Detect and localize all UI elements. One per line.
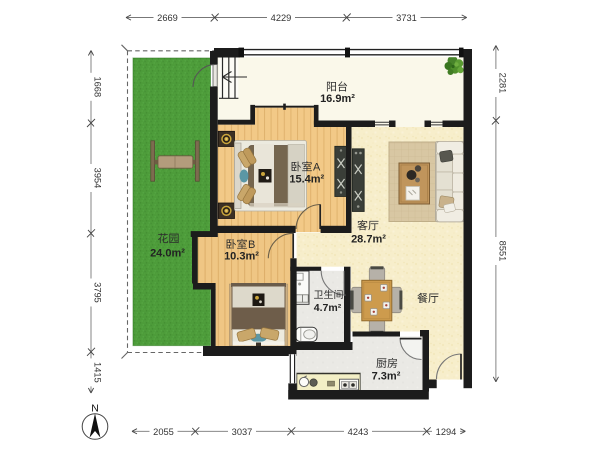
svg-text:8551: 8551: [497, 241, 507, 262]
svg-text:2055: 2055: [153, 427, 174, 437]
svg-text:1294: 1294: [436, 427, 457, 437]
svg-text:3037: 3037: [232, 427, 253, 437]
svg-text:1668: 1668: [93, 76, 103, 97]
svg-text:7.3m²: 7.3m²: [372, 370, 401, 382]
svg-text:28.7m²: 28.7m²: [351, 233, 386, 245]
svg-text:3731: 3731: [396, 13, 417, 23]
svg-text:15.4m²: 15.4m²: [289, 173, 324, 185]
svg-text:4.7m²: 4.7m²: [314, 302, 342, 314]
svg-text:3954: 3954: [93, 168, 103, 189]
svg-text:24.0m²: 24.0m²: [150, 247, 185, 259]
svg-text:B: B: [248, 239, 255, 251]
svg-text:2669: 2669: [157, 13, 178, 23]
svg-text:2281: 2281: [497, 73, 507, 94]
svg-text:1415: 1415: [93, 362, 103, 383]
svg-text:4243: 4243: [348, 427, 369, 437]
svg-text:N: N: [91, 403, 99, 415]
svg-text:A: A: [313, 162, 321, 174]
svg-text:10.3m²: 10.3m²: [224, 250, 259, 262]
svg-text:16.9m²: 16.9m²: [320, 93, 355, 105]
svg-text:4229: 4229: [271, 13, 292, 23]
svg-text:3795: 3795: [93, 282, 103, 303]
